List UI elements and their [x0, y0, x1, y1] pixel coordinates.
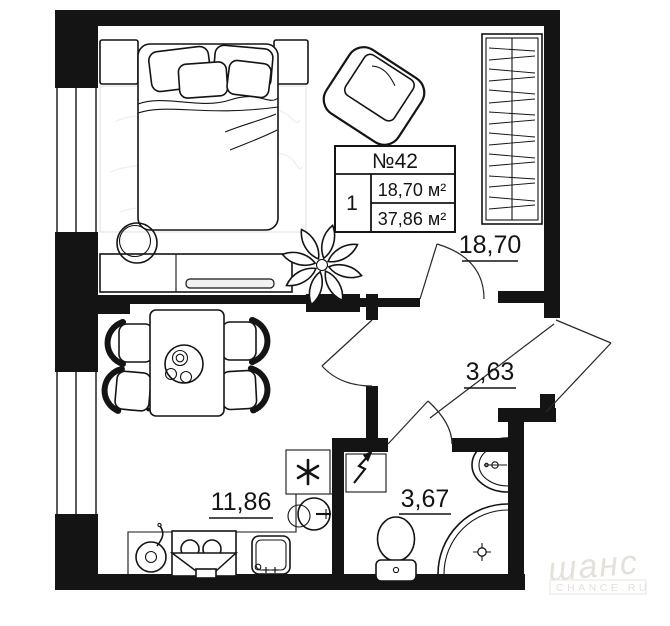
wall-pier-left: [83, 299, 130, 314]
unit-number: №42: [372, 150, 418, 173]
area-label-kitchen: 11,86: [209, 488, 273, 518]
svg-text:3,63: 3,63: [466, 358, 515, 386]
dining-set: [103, 310, 269, 417]
floor-plan-page: №42 1 18,70 м² 37,86 м² 18,70 3,63 11,86…: [0, 0, 670, 626]
svg-text:18,70: 18,70: [459, 231, 522, 259]
wall-left-upper: [55, 10, 98, 88]
vent-icon: [286, 450, 330, 494]
wall-kitchen-stub-top: [366, 294, 378, 320]
unit-info-table: №42 1 18,70 м² 37,86 м²: [335, 146, 455, 232]
wall-kitchen-lower: [332, 438, 344, 574]
chair: [108, 319, 155, 367]
wall-bathroom-right: [508, 408, 524, 574]
window-bedroom: [57, 88, 96, 232]
watermark: шанс CHANCE.RU: [547, 543, 650, 594]
chair: [103, 365, 154, 417]
wall-living-hall-right: [498, 291, 544, 303]
door-entrance: [430, 320, 611, 418]
pillow: [178, 61, 228, 98]
wall-kitchen-mid: [366, 386, 378, 442]
toilet-icon: [376, 517, 416, 581]
pillow: [226, 60, 272, 99]
bed-icon: [138, 44, 278, 230]
unit-total-area: 37,86 м²: [378, 209, 446, 229]
watermark-site: CHANCE.RU: [556, 582, 650, 594]
door-bathroom: [388, 401, 452, 444]
electric-panel-icon: [346, 450, 386, 492]
stove-icon: [172, 531, 236, 578]
window-kitchen: [57, 372, 96, 514]
nightstand-left: [100, 40, 138, 84]
unit-living-area: 18,70 м²: [378, 180, 446, 200]
floor-plan: №42 1 18,70 м² 37,86 м² 18,70 3,63 11,86…: [0, 0, 670, 626]
shower-drain-icon: [473, 543, 491, 561]
armchair-icon: [317, 41, 431, 152]
chair: [219, 365, 269, 415]
svg-text:3,67: 3,67: [401, 485, 450, 513]
wall-bottom: [55, 574, 525, 590]
nightstand-right: [274, 40, 308, 84]
area-label-bathroom: 3,67: [399, 485, 451, 514]
kitchen-sink-icon: [252, 536, 290, 574]
tv-stand: [100, 254, 292, 292]
dining-table: [150, 310, 224, 416]
svg-text:11,86: 11,86: [211, 488, 272, 516]
unit-rooms-count: 1: [346, 192, 358, 215]
door-kitchen: [322, 320, 372, 386]
wall-right-upper: [544, 10, 560, 318]
chair: [220, 317, 267, 365]
area-label-hallway: 3,63: [464, 358, 516, 388]
wall-top: [55, 10, 560, 26]
round-sink-icon: [288, 498, 331, 530]
area-label-living-room: 18,70: [459, 231, 522, 261]
wardrobe-icon: [482, 34, 542, 224]
frying-pan-icon: [136, 523, 166, 572]
tv: [186, 279, 274, 288]
